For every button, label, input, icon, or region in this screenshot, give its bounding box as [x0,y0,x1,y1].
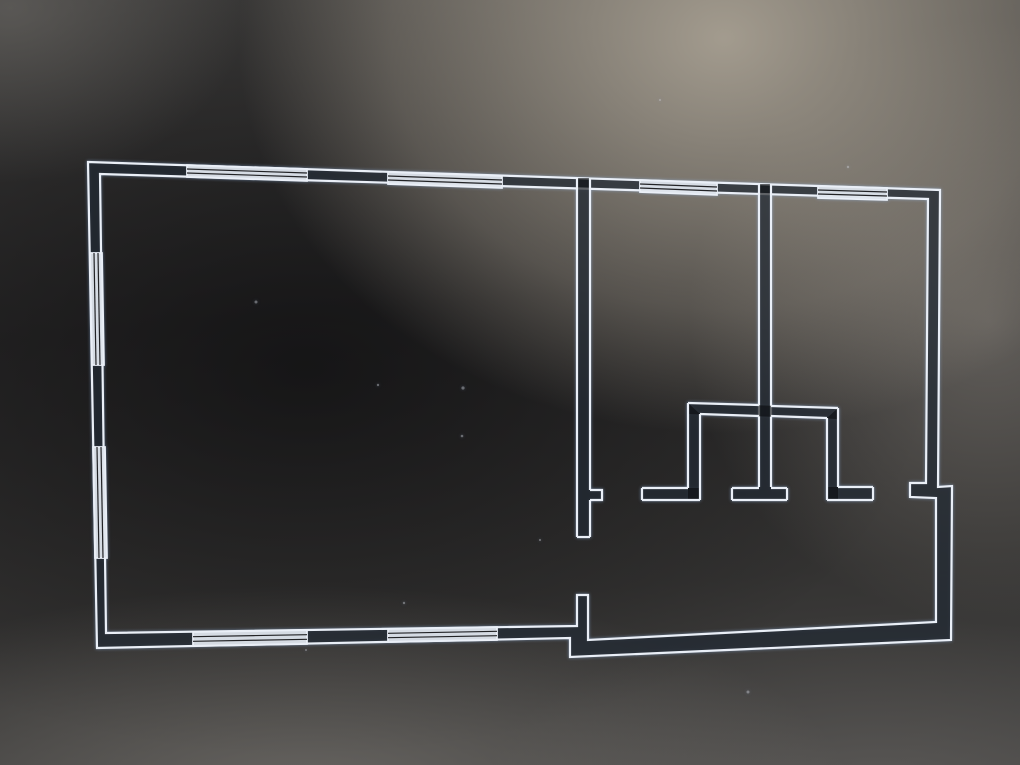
window-bottom-2 [388,627,497,642]
divider-door-jamb-foot [732,487,787,500]
window-top-3 [640,180,717,195]
window-left-1 [90,253,104,365]
window-top-4 [818,186,887,200]
closet-left-wall-with-jamb [642,403,700,500]
window-left-2 [93,447,107,558]
interior-walls [577,178,873,537]
living-room-divider-wall [577,178,602,537]
window-top-1 [187,165,307,181]
bedroom-divider-wall [759,184,771,487]
floor-plan-drawing [0,0,1020,765]
screen-photo-background [0,0,1020,765]
closet-right-wall-with-jamb [827,408,873,500]
window-bottom-1 [193,630,307,646]
